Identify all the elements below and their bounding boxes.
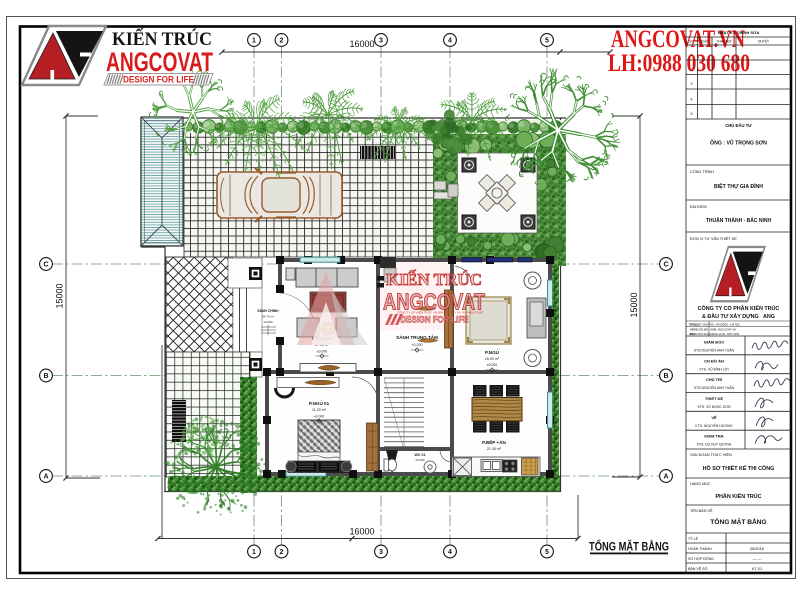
svg-text:KIỂM TRA: KIỂM TRA — [704, 434, 723, 439]
svg-text:SỐ HỢP ĐỒNG: SỐ HỢP ĐỒNG — [688, 556, 714, 561]
svg-text:THAY ĐỔI: THAY ĐỔI — [717, 39, 732, 44]
svg-text:04.70 m²: 04.70 m² — [262, 315, 274, 319]
svg-text:ANGCOVAT: ANGCOVAT — [106, 47, 213, 77]
svg-text:SỐ: SỐ — [689, 39, 694, 44]
svg-text:TỔNG MẶT BẰNG: TỔNG MẶT BẰNG — [589, 541, 669, 554]
svg-text:BẢN VẼ SỐ: BẢN VẼ SỐ — [688, 566, 708, 571]
svg-text:CÔNG TRÌNH: CÔNG TRÌNH — [690, 169, 714, 174]
svg-text:HỒ SƠ THIẾT KẾ THI CÔNG: HỒ SƠ THIẾT KẾ THI CÔNG — [703, 464, 775, 472]
svg-text:DESIGN FOR LIFE: DESIGN FOR LIFE — [401, 315, 469, 326]
svg-text:A: A — [43, 473, 48, 480]
svg-text:DESIGN FOR LIFE: DESIGN FOR LIFE — [123, 74, 194, 84]
svg-text:KTS.NGUYỄN ANH TUẤN: KTS.NGUYỄN ANH TUẤN — [694, 348, 735, 353]
svg-text:WC 01: WC 01 — [415, 453, 426, 457]
svg-text:±0.000: ±0.000 — [317, 350, 327, 354]
svg-text:B: B — [43, 373, 48, 380]
svg-text:15000: 15000 — [629, 292, 639, 317]
svg-text:2: 2 — [280, 37, 284, 44]
svg-text:GIAI ĐOẠN THỰC HIỆN: GIAI ĐOẠN THỰC HIỆN — [690, 452, 732, 457]
svg-text:KTS. VŨ NGỌC SƠN: KTS. VŨ NGỌC SƠN — [698, 404, 731, 409]
svg-text:11.20 m²: 11.20 m² — [312, 408, 327, 412]
svg-text:ĐƠN VỊ TƯ VẤN THIẾT KẾ: ĐƠN VỊ TƯ VẤN THIẾT KẾ — [690, 236, 737, 241]
svg-text:15000: 15000 — [55, 283, 65, 308]
svg-text:2: 2 — [280, 549, 284, 556]
svg-text:3: 3 — [379, 37, 383, 44]
svg-text:NGÀY: NGÀY — [700, 40, 710, 44]
svg-text:SẢNH TRUNG TÂM: SẢNH TRUNG TÂM — [396, 334, 438, 340]
svg-text:C: C — [663, 261, 668, 268]
svg-text:KTS.NGUYỄN ANH TUẤN: KTS.NGUYỄN ANH TUẤN — [694, 385, 735, 390]
svg-text:KTS. VŨ ĐÌNH LỢI: KTS. VŨ ĐÌNH LỢI — [699, 366, 728, 371]
svg-text:5: 5 — [545, 549, 549, 556]
svg-text:4: 4 — [448, 549, 452, 556]
svg-text:CHỦ TRÌ: CHỦ TRÌ — [706, 377, 722, 382]
svg-text:16000: 16000 — [349, 39, 374, 49]
svg-text:5: 5 — [545, 37, 549, 44]
svg-text:CÔNG TY CỔ PHẦN KIẾN TRÚC: CÔNG TY CỔ PHẦN KIẾN TRÚC — [698, 304, 780, 312]
svg-text:3: 3 — [379, 549, 383, 556]
svg-text:P.NGỦ: P.NGỦ — [485, 349, 500, 355]
svg-text:16000: 16000 — [349, 527, 374, 537]
svg-text:±0.000: ±0.000 — [263, 320, 272, 324]
svg-text:1: 1 — [252, 549, 256, 556]
svg-text:— —: — — — [753, 557, 762, 561]
svg-text:5: 5 — [691, 112, 693, 116]
svg-text:+0.200: +0.200 — [411, 343, 422, 347]
svg-text:±0.000: ±0.000 — [415, 458, 424, 462]
svg-text:HẠNG MỤC: HẠNG MỤC — [690, 482, 711, 486]
svg-text:THUẬN THÀNH - BẮC NINH: THUẬN THÀNH - BẮC NINH — [706, 216, 772, 224]
svg-text:4: 4 — [448, 37, 452, 44]
svg-text:3: 3 — [691, 82, 693, 86]
svg-text:THIẾT KẾ: THIẾT KẾ — [705, 396, 724, 401]
svg-text:KTS. DU HUY QUỲNH: KTS. DU HUY QUỲNH — [697, 443, 732, 447]
svg-text:HOÀN THÀNH: HOÀN THÀNH — [688, 547, 712, 551]
svg-text:CN ĐỒ ÁN: CN ĐỒ ÁN — [704, 358, 724, 363]
svg-text:A: A — [663, 473, 668, 480]
svg-text:4: 4 — [691, 98, 693, 102]
svg-text:1: 1 — [252, 37, 256, 44]
svg-text:21.45 m²: 21.45 m² — [487, 447, 502, 451]
svg-text:TÊN BẢN VẼ: TÊN BẢN VẼ — [690, 508, 713, 513]
svg-text:TỔNG MẶT BẰNG: TỔNG MẶT BẰNG — [710, 517, 766, 526]
svg-text:16.00 m²: 16.00 m² — [485, 357, 500, 361]
svg-text:±0.000: ±0.000 — [487, 363, 497, 367]
svg-text:2: 2 — [691, 68, 693, 72]
svg-text:KT-01: KT-01 — [752, 567, 762, 571]
svg-text:±0.000: ±0.000 — [314, 415, 324, 419]
svg-text:VẼ: VẼ — [711, 415, 717, 420]
svg-text:KIẾN TRÚC: KIẾN TRÚC — [386, 270, 482, 289]
svg-text:P.BẾP +ĂN: P.BẾP +ĂN — [482, 439, 506, 445]
svg-text:P.NGỦ 01: P.NGỦ 01 — [309, 400, 330, 406]
svg-text:SẢNH CHÍNH: SẢNH CHÍNH — [257, 308, 279, 313]
svg-text:ÔNG : VŨ TRỌNG SƠN: ÔNG : VŨ TRỌNG SƠN — [710, 139, 767, 147]
svg-text:GIÁM ĐỐC: GIÁM ĐỐC — [704, 340, 725, 345]
svg-text:PHẦN KIẾN TRÚC: PHẦN KIẾN TRÚC — [715, 493, 761, 500]
svg-text:0988.030.680 - WEB: ANGCOVAT.V: 0988.030.680 - WEB: ANGCOVAT.VN — [692, 328, 736, 332]
svg-text:08/2018: 08/2018 — [750, 547, 764, 551]
svg-text:LH:0988 030 680: LH:0988 030 680 — [608, 50, 750, 77]
svg-text:NHẬT KÝ CHỈNH SỬA: NHẬT KÝ CHỈNH SỬA — [718, 30, 760, 35]
svg-text:1: 1 — [691, 53, 693, 57]
svg-text:ĐỊA ĐIỂM: ĐỊA ĐIỂM — [690, 204, 707, 209]
svg-text:CHỦ ĐẦU TƯ: CHỦ ĐẦU TƯ — [725, 123, 752, 128]
svg-text:& ĐẦU TƯ XÂY DỰNG ANG: & ĐẦU TƯ XÂY DỰNG ANG — [702, 313, 775, 320]
svg-text:TỶ LỆ: TỶ LỆ — [688, 536, 699, 541]
svg-text:C: C — [43, 261, 48, 268]
svg-text:B: B — [663, 373, 668, 380]
svg-text:BIỆT THỰ GIA ĐÌNH: BIỆT THỰ GIA ĐÌNH — [714, 182, 763, 190]
svg-text:DUYỆT: DUYỆT — [758, 39, 769, 44]
svg-text:KTS. NGUYỄN HƯƠNG: KTS. NGUYỄN HƯƠNG — [695, 423, 733, 428]
svg-text:ANGCOVAT-AD@GMAIL.COM - MST 01: ANGCOVAT-AD@GMAIL.COM - MST 0106 — [689, 332, 740, 336]
